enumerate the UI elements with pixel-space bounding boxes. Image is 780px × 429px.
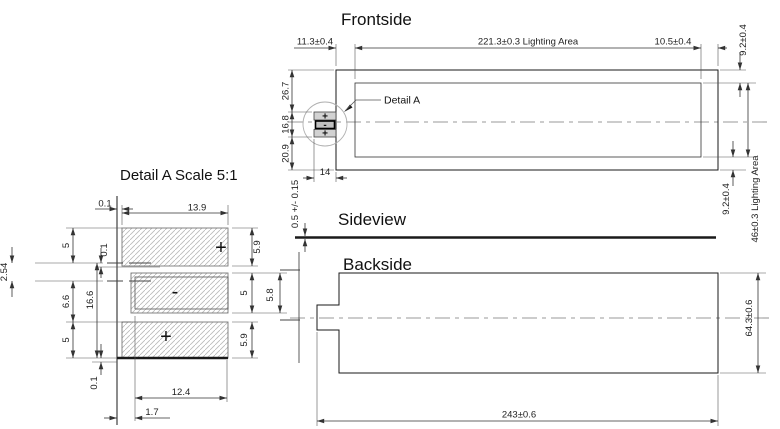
backside-height-dim: 64.3±0.6 bbox=[720, 273, 766, 373]
detail-pad-minus-label: - bbox=[172, 281, 179, 303]
dim-connector-width: 14 bbox=[320, 167, 331, 178]
frontside-outline bbox=[336, 70, 718, 170]
sideview-title: Sideview bbox=[338, 210, 407, 229]
backside-length-dim: 243±0.6 bbox=[317, 332, 718, 426]
dim-lighting-width: 221.3±0.3 Lighting Area bbox=[478, 37, 579, 48]
dim-edge-gap-top: 0.1 bbox=[98, 199, 111, 210]
dim-top-pad-height: 5.9 bbox=[252, 240, 263, 253]
detail-a-label: Detail A bbox=[384, 95, 420, 107]
dim-left-bottom: 5 bbox=[61, 337, 72, 342]
dim-mid-pad-height-outer: 5.8 bbox=[265, 288, 276, 301]
detail-left-dims: 5 6.6 5 2.54 16.6 0.1 0.1 bbox=[0, 228, 131, 390]
dim-mid-pad-width: 12.4 bbox=[172, 387, 191, 398]
dim-connector-height: 16.8 bbox=[281, 115, 292, 134]
leader-line bbox=[346, 100, 382, 111]
sideview-thickness-dim: 0.5 +/- 0.15 bbox=[290, 180, 305, 252]
dim-left-top: 5 bbox=[61, 243, 72, 248]
detail-a-view: Detail A Scale 5:1 + - + bbox=[0, 167, 300, 425]
dim-lighting-height: 46±0.3 Lighting Area bbox=[750, 155, 761, 243]
dim-lower-section: 20.9 bbox=[281, 144, 292, 163]
drawing-canvas: Frontside + - + Detail A 11 bbox=[0, 0, 780, 429]
detail-pad-plus-bottom bbox=[122, 322, 228, 358]
sideview-view: Sideview 0.5 +/- 0.15 bbox=[290, 180, 716, 252]
frontside-title: Frontside bbox=[341, 10, 412, 29]
dim-bottom-pad-height: 5.9 bbox=[239, 333, 250, 346]
backside-view: Backside 64.3±0.6 243±0.6 bbox=[290, 255, 770, 426]
dim-offset-right: 10.5±0.4 bbox=[655, 37, 692, 48]
dim-mid-pad-height-inner: 5 bbox=[239, 290, 250, 295]
dim-gap-lower: 0.1 bbox=[89, 376, 100, 389]
detail-pad-plus-top bbox=[122, 228, 228, 266]
dim-left-middle: 6.6 bbox=[61, 295, 72, 308]
dim-backside-length: 243±0.6 bbox=[502, 410, 536, 421]
detail-a-callout: Detail A bbox=[344, 95, 420, 113]
dim-margin-bottom: 9.2±0.4 bbox=[721, 183, 732, 215]
detail-pad-plus-bottom-label: + bbox=[160, 326, 172, 348]
dim-thickness: 0.5 +/- 0.15 bbox=[290, 180, 301, 228]
dim-pitch: 2.54 bbox=[0, 263, 10, 282]
detail-right-dims: 5.9 5 5.8 5.9 bbox=[232, 228, 287, 358]
dim-total-height: 16.6 bbox=[85, 291, 96, 310]
detail-pad-minus bbox=[131, 273, 228, 313]
dim-backside-height: 64.3±0.6 bbox=[744, 300, 755, 337]
engineering-drawing: Frontside + - + Detail A 11 bbox=[0, 0, 780, 429]
backside-title: Backside bbox=[343, 255, 412, 274]
dim-upper-section: 26.7 bbox=[281, 82, 292, 101]
frontside-connector-pads: + - + bbox=[314, 111, 336, 139]
detail-pad-plus-top-label: + bbox=[215, 237, 227, 259]
dim-outer-pad-width: 13.9 bbox=[188, 203, 207, 214]
detail-top-dims: 0.1 13.9 bbox=[95, 199, 228, 226]
backside-outline bbox=[317, 273, 718, 373]
frontside-right-dims: 9.2±0.4 46±0.3 Lighting Area 9.2±0.4 bbox=[703, 24, 761, 242]
dim-offset-left: 11.3±0.4 bbox=[297, 37, 333, 48]
frontside-top-dims: 11.3±0.4 221.3±0.3 Lighting Area 10.5±0.… bbox=[294, 37, 727, 80]
dim-gap-upper: 0.1 bbox=[99, 243, 110, 256]
dim-margin-top: 9.2±0.4 bbox=[738, 24, 749, 56]
pad-plus-bottom-label: + bbox=[322, 129, 328, 140]
frontside-tab-dim: 14 bbox=[303, 139, 347, 182]
dim-mid-pad-offset: 1.7 bbox=[145, 407, 158, 418]
frontside-view: Frontside + - + Detail A 11 bbox=[281, 10, 773, 243]
detail-title: Detail A Scale 5:1 bbox=[120, 167, 238, 184]
